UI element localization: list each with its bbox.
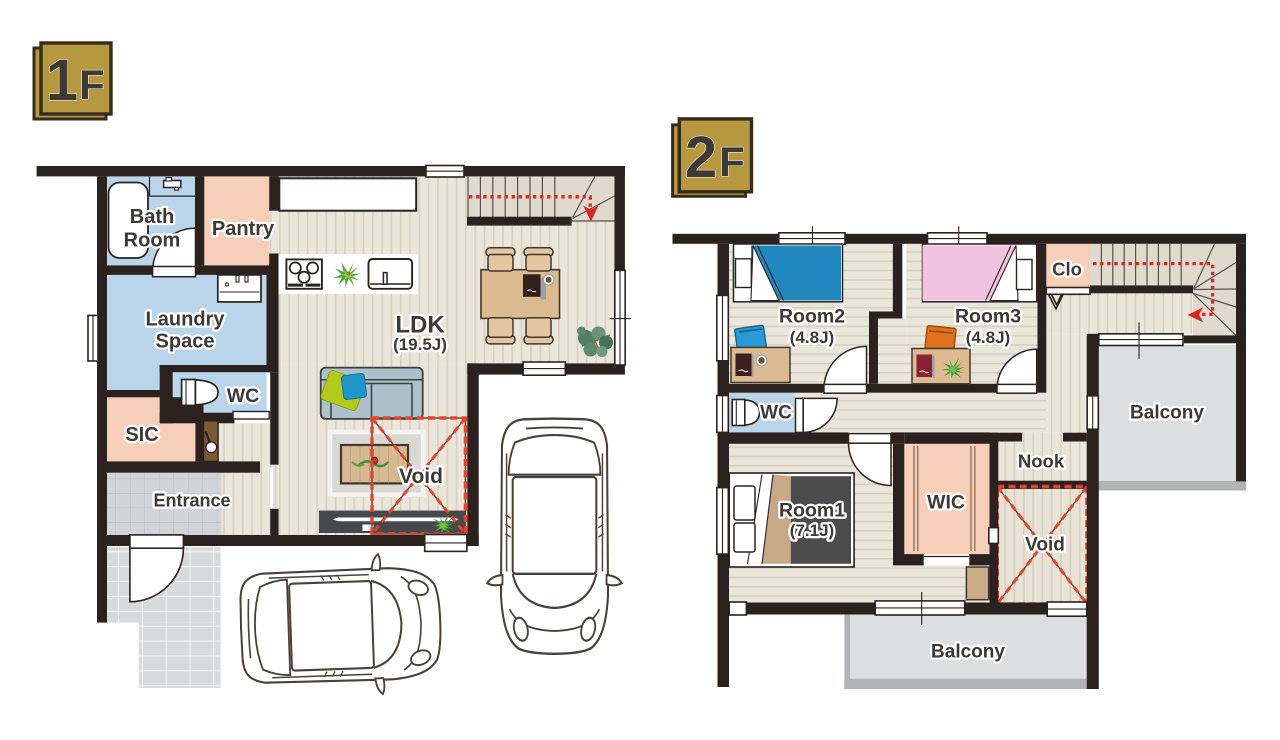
svg-text:WIC: WIC (927, 492, 965, 514)
svg-text:2: 2 (685, 125, 717, 190)
svg-text:Balcony: Balcony (931, 642, 1005, 663)
svg-text:WC: WC (760, 403, 792, 424)
svg-text:F: F (719, 138, 745, 185)
svg-text:Room2: Room2 (779, 306, 845, 328)
svg-text:Room3: Room3 (955, 306, 1021, 328)
svg-text:F: F (79, 61, 105, 108)
svg-text:Void: Void (1025, 535, 1065, 556)
svg-text:Clo: Clo (1052, 259, 1082, 280)
svg-text:Entrance: Entrance (153, 491, 230, 511)
svg-text:Laundry: Laundry (146, 309, 226, 331)
svg-text:Room: Room (124, 230, 181, 252)
svg-text:(7.1J): (7.1J) (790, 521, 834, 540)
svg-text:1: 1 (46, 48, 78, 113)
svg-text:Void: Void (399, 465, 443, 488)
svg-text:SIC: SIC (125, 424, 158, 446)
svg-text:(19.5J): (19.5J) (393, 335, 447, 354)
svg-text:(4.8J): (4.8J) (790, 328, 834, 347)
svg-text:Balcony: Balcony (1130, 403, 1204, 424)
svg-text:(4.8J): (4.8J) (966, 328, 1010, 347)
svg-text:Pantry: Pantry (212, 218, 275, 240)
svg-text:Space: Space (156, 331, 215, 353)
svg-text:WC: WC (227, 385, 260, 407)
svg-text:Nook: Nook (1018, 451, 1065, 472)
svg-text:Room1: Room1 (779, 500, 845, 522)
svg-text:Bath: Bath (130, 206, 174, 228)
